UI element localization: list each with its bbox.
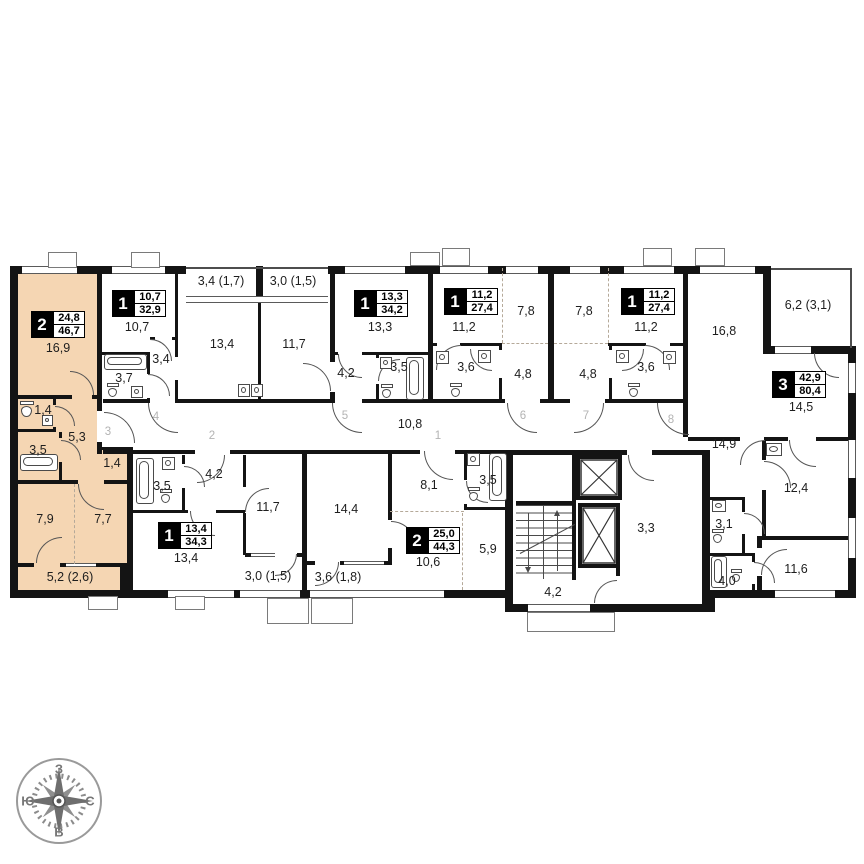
wall-segment (18, 563, 34, 567)
door-arc (424, 451, 453, 480)
bathtub-icon (136, 458, 154, 504)
wall-segment (384, 561, 388, 565)
apartment-area-box: 42,980,4 (794, 371, 826, 398)
wall-segment (216, 510, 245, 513)
compass-letter-south: Ю (21, 794, 34, 809)
wall-segment (540, 399, 570, 403)
wall-segment (433, 343, 437, 346)
room-area-label: 11,6 (784, 562, 807, 576)
room-area-label: 14,4 (334, 502, 358, 516)
wall-segment (53, 399, 56, 405)
window (570, 266, 600, 274)
toilet-icon (450, 383, 464, 400)
room-area-label: 7,8 (575, 304, 592, 318)
wall-segment (757, 540, 762, 548)
room-area-label: 4,8 (579, 367, 596, 381)
apartment-rooms-count: 1 (158, 522, 180, 549)
window (344, 561, 384, 565)
apartment-badge: 110,732,9 (112, 290, 166, 317)
wall-segment (652, 450, 710, 455)
window (506, 266, 538, 274)
wall-segment (464, 507, 510, 510)
room-area-label: 3,5 (390, 360, 407, 374)
wall-segment (816, 437, 848, 441)
apartment-rooms-count: 1 (112, 290, 134, 317)
apartment-door-number: 5 (342, 410, 348, 422)
dashed-partition (554, 343, 608, 344)
window (528, 604, 590, 612)
wall-segment (18, 480, 78, 484)
elevator-shaft-icon (580, 459, 618, 496)
room-area-label: 3,5 (479, 473, 496, 487)
kitchen-unit-icon (238, 384, 250, 397)
apartment-badge: 111,227,4 (621, 288, 675, 315)
apartment-area-box: 10,732,9 (134, 290, 166, 317)
dashed-partition (608, 268, 609, 343)
apartment-badge: 342,980,4 (772, 371, 826, 398)
room-area-label: 1,4 (34, 403, 51, 417)
wall-segment (307, 561, 315, 565)
wall-segment (616, 568, 620, 576)
room-area-label: 5,9 (479, 542, 496, 556)
wall-segment (330, 392, 335, 403)
room-area-label: 3,0 (1,5) (270, 274, 317, 288)
window-sill (48, 252, 77, 268)
window (848, 440, 856, 478)
wall-segment (175, 337, 178, 357)
kitchen-unit-icon (251, 384, 263, 397)
room-area-label: 3,4 (152, 352, 169, 366)
apartment-rooms-count: 1 (621, 288, 643, 315)
wall-segment (182, 455, 185, 464)
wall-segment (499, 346, 502, 350)
dashed-partition (502, 343, 548, 344)
wall-segment (376, 355, 379, 358)
window (345, 266, 405, 274)
apartment-living-area: 24,8 (54, 312, 84, 325)
window-sill (88, 596, 118, 610)
wall-segment (763, 266, 771, 354)
wall-segment (702, 455, 710, 604)
window (66, 563, 96, 567)
room-area-label: 16,9 (46, 341, 70, 355)
room-area-label: 11,2 (452, 320, 475, 334)
wall-segment (388, 548, 392, 565)
apartment-door-number: 4 (153, 411, 159, 423)
apartment-total-area: 34,2 (377, 304, 407, 316)
bathtub-icon (104, 354, 147, 370)
room-area-label: 13,3 (368, 320, 392, 334)
room-area-label: 4,2 (205, 467, 222, 481)
room-area-label: 13,4 (174, 551, 198, 565)
wall-segment (243, 455, 246, 487)
apartment-badge: 224,846,7 (31, 311, 85, 338)
apartment-living-area: 10,7 (135, 291, 165, 304)
apartment-area-box: 25,044,3 (428, 527, 460, 554)
room-area-label: 3,6 (1,8) (315, 570, 362, 584)
apartment-area-box: 11,227,4 (643, 288, 675, 315)
apartment-total-area: 32,9 (135, 304, 165, 316)
toilet-icon (712, 529, 726, 546)
wall-segment (582, 564, 616, 568)
room-area-label: 14,5 (789, 400, 813, 414)
apartment-rooms-count: 2 (31, 311, 53, 338)
balcony-railing (771, 268, 852, 270)
apartment-rooms-count: 3 (772, 371, 794, 398)
wall-segment (616, 503, 620, 568)
apartment-living-area: 25,0 (429, 528, 459, 541)
apartment-rooms-count: 1 (354, 290, 376, 317)
door-arc (148, 374, 170, 396)
apartment-badge: 225,044,3 (406, 527, 460, 554)
window-sill (527, 612, 615, 632)
room-area-label: 7,9 (36, 512, 53, 526)
apartment-area-box: 24,846,7 (53, 311, 85, 338)
apartment-badge: 113,334,2 (354, 290, 408, 317)
wall-segment (18, 429, 56, 432)
apartment-total-area: 46,7 (54, 325, 84, 337)
apartment-living-area: 11,2 (467, 289, 497, 302)
apartment-total-area: 44,3 (429, 541, 459, 553)
wall-segment (103, 450, 195, 454)
room-area-label: 12,4 (784, 481, 808, 495)
apartment-total-area: 27,4 (644, 302, 674, 314)
room-area-label: 11,7 (282, 337, 305, 351)
highlighted-apartment-area (18, 480, 133, 567)
floor-plan-page: 16,910,73,4 (1,7)3,0 (1,5)13,411,713,311… (0, 0, 864, 864)
room-area-label: 7,7 (94, 512, 111, 526)
apartment-door-number: 1 (435, 430, 441, 442)
wall-segment (388, 450, 392, 520)
toilet-icon (468, 487, 482, 504)
door-arc (740, 440, 765, 465)
dashed-partition (462, 513, 463, 590)
room-area-label: 10,8 (398, 417, 422, 431)
door-arc (303, 363, 331, 391)
stairs-icon (516, 505, 572, 579)
window (372, 590, 444, 598)
door-arc (789, 440, 816, 467)
wall-segment (608, 343, 646, 346)
elevator-shaft-icon (582, 507, 616, 564)
wall-segment (178, 399, 330, 403)
room-area-label: 5,2 (2,6) (47, 570, 94, 584)
sink-icon (131, 386, 143, 398)
apartment-door-number: 6 (520, 410, 526, 422)
room-area-label: 3,4 (1,7) (198, 274, 245, 288)
room-area-label: 3,6 (457, 360, 474, 374)
apartment-door-number: 8 (668, 414, 674, 426)
wall-segment (182, 488, 185, 510)
window-sill (695, 248, 725, 266)
apartment-total-area: 27,4 (467, 302, 497, 314)
wall-segment (428, 266, 433, 403)
room-area-label: 11,2 (634, 320, 657, 334)
wall-segment (548, 266, 554, 403)
window (700, 266, 755, 274)
window (624, 266, 674, 274)
window (848, 363, 856, 393)
room-area-label: 5,3 (68, 430, 85, 444)
room-area-label: 10,6 (416, 555, 440, 569)
room-area-label: 4,0 (718, 574, 735, 588)
washer-icon (162, 457, 175, 470)
apartment-living-area: 13,4 (181, 523, 211, 536)
apartment-rooms-count: 1 (444, 288, 466, 315)
room-area-label: 3,5 (29, 443, 46, 457)
window (186, 296, 328, 303)
sink-icon (478, 350, 491, 363)
window-sill (643, 248, 672, 266)
compass-letter-north: С (85, 794, 94, 809)
door-arc (628, 455, 654, 481)
washer-icon (467, 453, 480, 466)
wall-segment (127, 450, 133, 590)
wall-segment (59, 432, 62, 438)
room-area-label: 7,8 (517, 304, 534, 318)
apartment-badge: 111,227,4 (444, 288, 498, 315)
wall-segment (742, 497, 745, 512)
window (240, 590, 300, 598)
apartment-area-box: 13,434,3 (180, 522, 212, 549)
wall-segment (362, 352, 428, 355)
window (775, 346, 811, 354)
room-area-label: 3,0 (1,5) (245, 569, 292, 583)
apartment-living-area: 11,2 (644, 289, 674, 302)
window-sill (267, 598, 309, 624)
room-area-label: 3,5 (153, 479, 170, 493)
apartment-door-number: 2 (209, 430, 215, 442)
apartment-door-number: 7 (583, 410, 589, 422)
window (440, 266, 488, 274)
sink-icon (712, 500, 726, 512)
room-area-label: 4,2 (337, 366, 354, 380)
washer-icon (436, 351, 449, 364)
apartment-rooms-count: 2 (406, 527, 428, 554)
dashed-partition (74, 484, 75, 564)
room-area-label: 6,2 (3,1) (785, 298, 832, 312)
apartment-living-area: 13,3 (377, 291, 407, 304)
window-sill (175, 596, 205, 610)
room-area-label: 3,6 (637, 360, 654, 374)
wall-segment (330, 266, 335, 362)
room-area-label: 1,4 (103, 456, 120, 470)
wall-segment (757, 536, 848, 540)
dashed-partition (390, 511, 464, 512)
wall-segment (752, 584, 755, 592)
wall-segment (97, 266, 102, 411)
window-sill (311, 598, 353, 624)
wall-segment (59, 462, 62, 480)
room-area-label: 13,4 (210, 337, 234, 351)
window-sill (131, 252, 160, 268)
kitchen-unit-icon (766, 443, 782, 456)
room-area-label: 10,7 (125, 320, 149, 334)
window (310, 590, 372, 598)
room-area-label: 4,8 (514, 367, 531, 381)
room-area-label: 3,3 (637, 521, 654, 535)
wall-segment (18, 395, 72, 399)
window (775, 590, 835, 598)
apartment-total-area: 34,3 (181, 536, 211, 548)
window (848, 518, 856, 558)
wall-segment (302, 450, 307, 590)
room-area-label: 8,1 (420, 478, 437, 492)
wall-segment (175, 266, 178, 340)
room-area-label: 3,1 (715, 517, 732, 531)
wall-segment (618, 455, 622, 500)
toilet-icon (628, 383, 642, 400)
room-area-label: 14,9 (712, 437, 736, 451)
wall-segment (96, 563, 122, 567)
apartment-badge: 113,434,3 (158, 522, 212, 549)
window (251, 553, 275, 557)
wall-segment (752, 553, 755, 562)
wall-segment (609, 346, 612, 350)
window-sill (410, 252, 440, 266)
door-arc (594, 580, 617, 603)
sink-icon (616, 350, 629, 363)
toilet-icon (107, 383, 121, 400)
room-area-label: 16,8 (712, 324, 736, 338)
washer-icon (663, 351, 676, 364)
dashed-partition (502, 268, 503, 343)
wall-segment (120, 563, 127, 590)
wall-segment (770, 437, 788, 441)
compass-letter-east: В (54, 825, 63, 840)
compass-letter-west: З (55, 762, 63, 777)
apartment-living-area: 42,9 (795, 372, 825, 385)
apartment-total-area: 80,4 (795, 385, 825, 397)
window-sill (442, 248, 470, 266)
wall-segment (670, 343, 683, 346)
room-area-label: 11,7 (256, 500, 279, 514)
room-area-label: 3,7 (115, 371, 132, 385)
wall-segment (460, 343, 502, 346)
apartment-door-number: 3 (105, 426, 111, 438)
balcony-railing (186, 267, 328, 269)
bathtub-icon (406, 357, 424, 400)
wall-segment (133, 510, 188, 513)
toilet-icon (381, 384, 395, 401)
room-area-label: 4,2 (544, 585, 561, 599)
wall-segment (92, 395, 97, 399)
wall-segment (10, 266, 18, 598)
apartment-area-box: 11,227,4 (466, 288, 498, 315)
balcony-railing (850, 268, 852, 348)
wall-segment (243, 513, 246, 555)
wall-segment (580, 496, 618, 500)
apartment-area-box: 13,334,2 (376, 290, 408, 317)
